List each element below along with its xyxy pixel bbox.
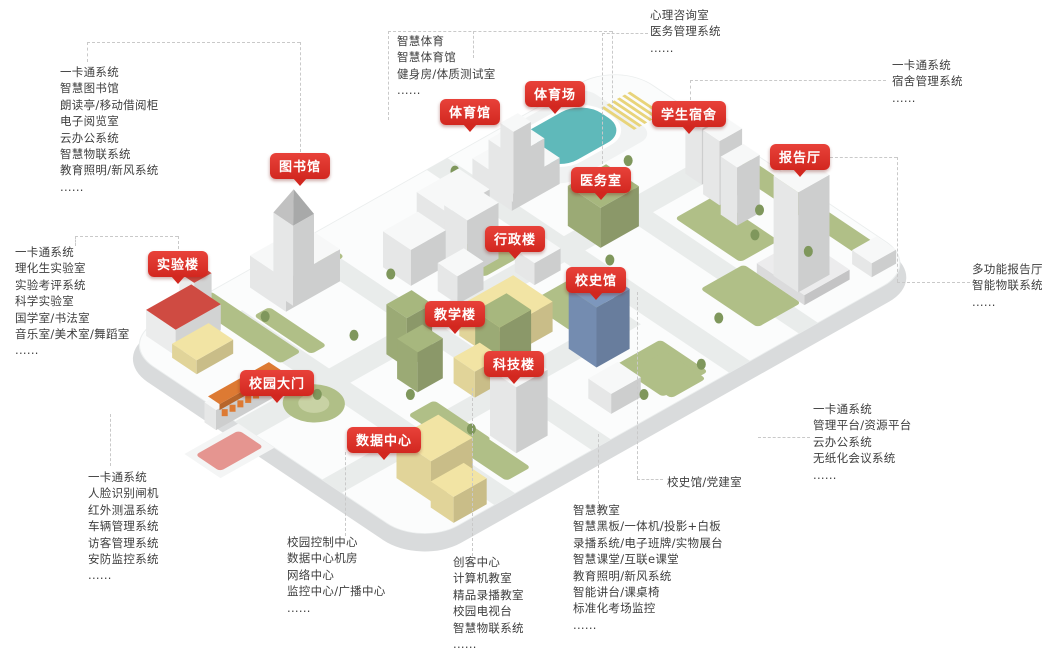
badge-tech: 科技楼 xyxy=(484,351,544,377)
badge-dorm: 学生宿舍 xyxy=(652,101,726,127)
connector-history-h xyxy=(637,479,663,480)
connector-library-v2 xyxy=(300,42,301,152)
list-item: 智能物联系统 xyxy=(972,277,1043,293)
system-list-medical: 心理咨询室医务管理系统...... xyxy=(650,7,721,56)
connector-medical-h xyxy=(602,33,648,34)
connector-hall-h2 xyxy=(897,282,970,283)
smart-campus-diagram: 一卡通系统智慧图书馆朗读亭/移动借阅柜电子阅览室云办公系统智慧物联系统教育照明/… xyxy=(0,0,1050,658)
list-item: 多功能报告厅 xyxy=(972,261,1043,277)
system-list-hall: 多功能报告厅智能物联系统...... xyxy=(972,261,1043,310)
badge-medical: 医务室 xyxy=(571,167,631,193)
connector-lab-v2 xyxy=(178,236,179,249)
connector-library-h xyxy=(87,42,300,43)
connector-hall-v xyxy=(897,157,898,282)
list-item: ...... xyxy=(453,636,524,652)
badge-lab: 实验楼 xyxy=(148,251,208,277)
badge-datacenter: 数据中心 xyxy=(347,427,421,453)
list-item: ...... xyxy=(972,294,1043,310)
badge-hall: 报告厅 xyxy=(770,144,830,170)
list-item: 医务管理系统 xyxy=(650,23,721,39)
list-item: 标准化考场监控 xyxy=(573,600,723,616)
list-item: ...... xyxy=(287,600,386,616)
connector-sports-h xyxy=(388,31,612,32)
badge-history: 校史馆 xyxy=(566,267,626,293)
list-item: ...... xyxy=(573,617,723,633)
connector-maker-v xyxy=(472,388,473,556)
connector-history-v xyxy=(637,292,638,479)
connector-lab-v1 xyxy=(75,236,76,246)
connector-sports-v2 xyxy=(473,31,474,58)
connector-sports-v1 xyxy=(388,31,389,120)
connector-lab-h xyxy=(75,236,178,237)
badge-gate: 校园大门 xyxy=(240,370,314,396)
badge-gym: 体育馆 xyxy=(440,99,500,125)
connector-sports-v3 xyxy=(612,31,613,108)
campus-isometric-map xyxy=(100,50,950,590)
list-item: 心理咨询室 xyxy=(650,7,721,23)
connector-gate-v xyxy=(110,414,111,466)
connector-hall-h1 xyxy=(830,157,897,158)
list-item: 智慧体育 xyxy=(397,33,496,49)
badge-teaching: 教学楼 xyxy=(425,301,485,327)
connector-datacenter-v xyxy=(345,452,346,536)
connector-dorm-h xyxy=(690,80,886,81)
badge-stadium: 体育场 xyxy=(525,81,585,107)
badge-library: 图书馆 xyxy=(270,153,330,179)
connector-dorm-v xyxy=(690,80,691,100)
list-item: 智慧物联系统 xyxy=(453,620,524,636)
connector-classroom-v xyxy=(598,434,599,504)
connector-library-v1 xyxy=(87,42,88,62)
connector-medical-v xyxy=(602,33,603,164)
connector-admin-h xyxy=(758,437,810,438)
list-item: 校园电视台 xyxy=(453,603,524,619)
badge-admin: 行政楼 xyxy=(485,226,545,252)
